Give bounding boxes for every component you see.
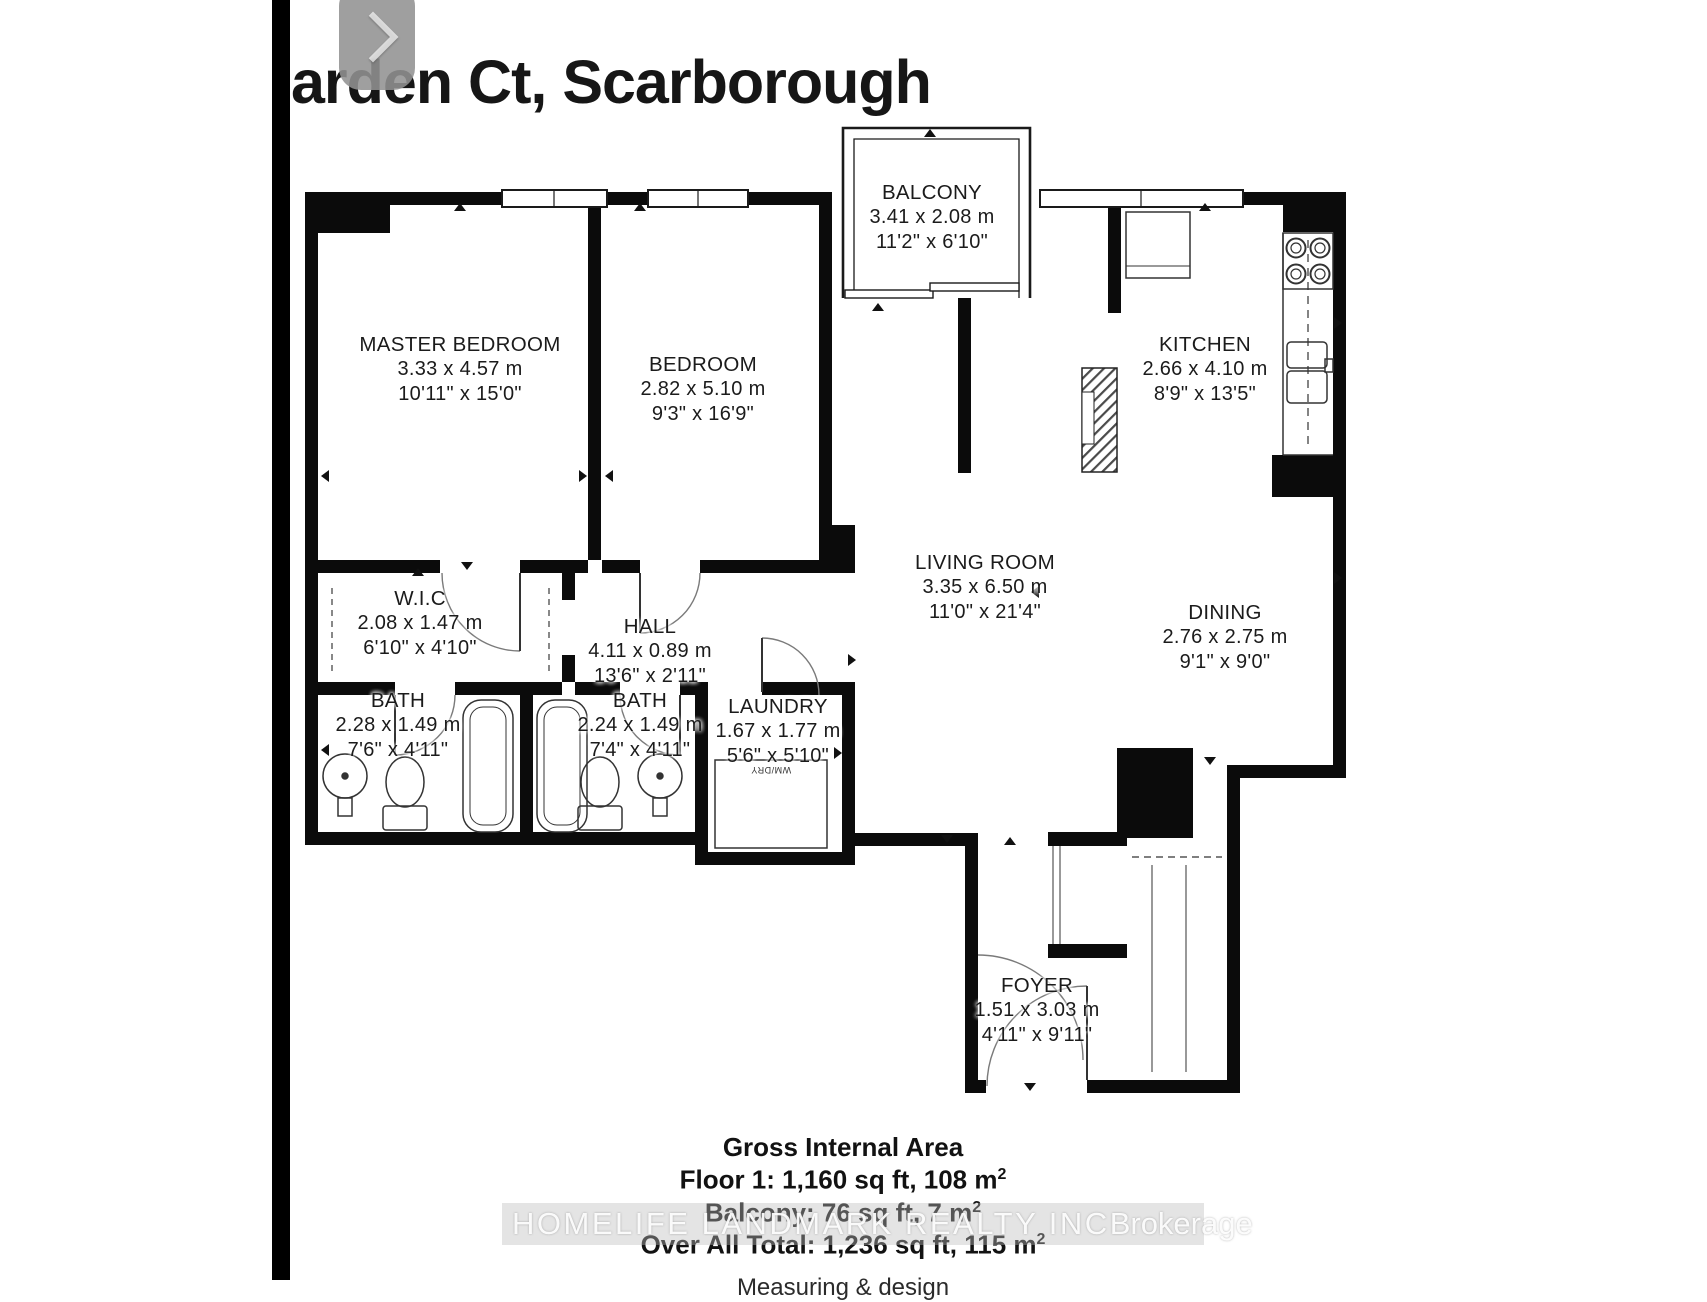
floor-plan-page: { "header": { "title": "arden Ct, Scarbo…: [0, 0, 1707, 1280]
room-label-balcony: BALCONY 3.41 x 2.08 m 11'2" x 6'10": [869, 180, 994, 255]
summary-heading: Gross Internal Area: [641, 1133, 1046, 1161]
room-label-living-room: LIVING ROOM 3.35 x 6.50 m 11'0" x 21'4": [915, 550, 1055, 625]
room-label-kitchen: KITCHEN 2.66 x 4.10 m 8'9" x 13'5": [1142, 332, 1267, 407]
room-label-master-bedroom: MASTER BEDROOM 3.33 x 4.57 m 10'11" x 15…: [359, 332, 560, 407]
room-label-bath-1: BATH 2.28 x 1.49 m 7'6" x 4'11": [335, 688, 460, 763]
toilet-1: [383, 806, 427, 830]
room-label-bedroom: BEDROOM 2.82 x 5.10 m 9'3" x 16'9": [640, 352, 765, 427]
watermark-suffix: Brokerage: [1110, 1206, 1253, 1242]
fridge: [1126, 212, 1190, 278]
watermark-brand: HOMELIFE LANDMARK REALTY INC: [512, 1206, 1110, 1242]
summary-credit: Measuring & design: [641, 1274, 1046, 1302]
room-label-wic: W.I.C 2.08 x 1.47 m 6'10" x 4'10": [357, 586, 482, 661]
room-label-bath-2: BATH 2.24 x 1.49 m 7'4" x 4'11": [577, 688, 702, 763]
washer-dryer-label: WM/DRY: [751, 765, 791, 775]
toilet-2: [578, 806, 622, 830]
watermark: HOMELIFE LANDMARK REALTY INC Brokerage: [502, 1203, 1204, 1245]
next-image-button[interactable]: [339, 0, 415, 90]
chevron-right-icon: [348, 12, 399, 63]
kitchen-sink: [1287, 342, 1327, 368]
room-label-laundry: LAUNDRY 1.67 x 1.77 m 5'6" x 5'10": [715, 694, 840, 769]
room-label-hall: HALL 4.11 x 0.89 m 13'6" x 2'11": [588, 614, 712, 689]
room-label-dining: DINING 2.76 x 2.75 m 9'1" x 9'0": [1162, 600, 1287, 675]
summary-floor1: Floor 1: 1,160 sq ft, 108 m2: [641, 1161, 1046, 1194]
floor-plan-drawing: [0, 0, 1707, 1280]
room-label-foyer: FOYER 1.51 x 3.03 m 4'11" x 9'11": [974, 973, 1099, 1048]
